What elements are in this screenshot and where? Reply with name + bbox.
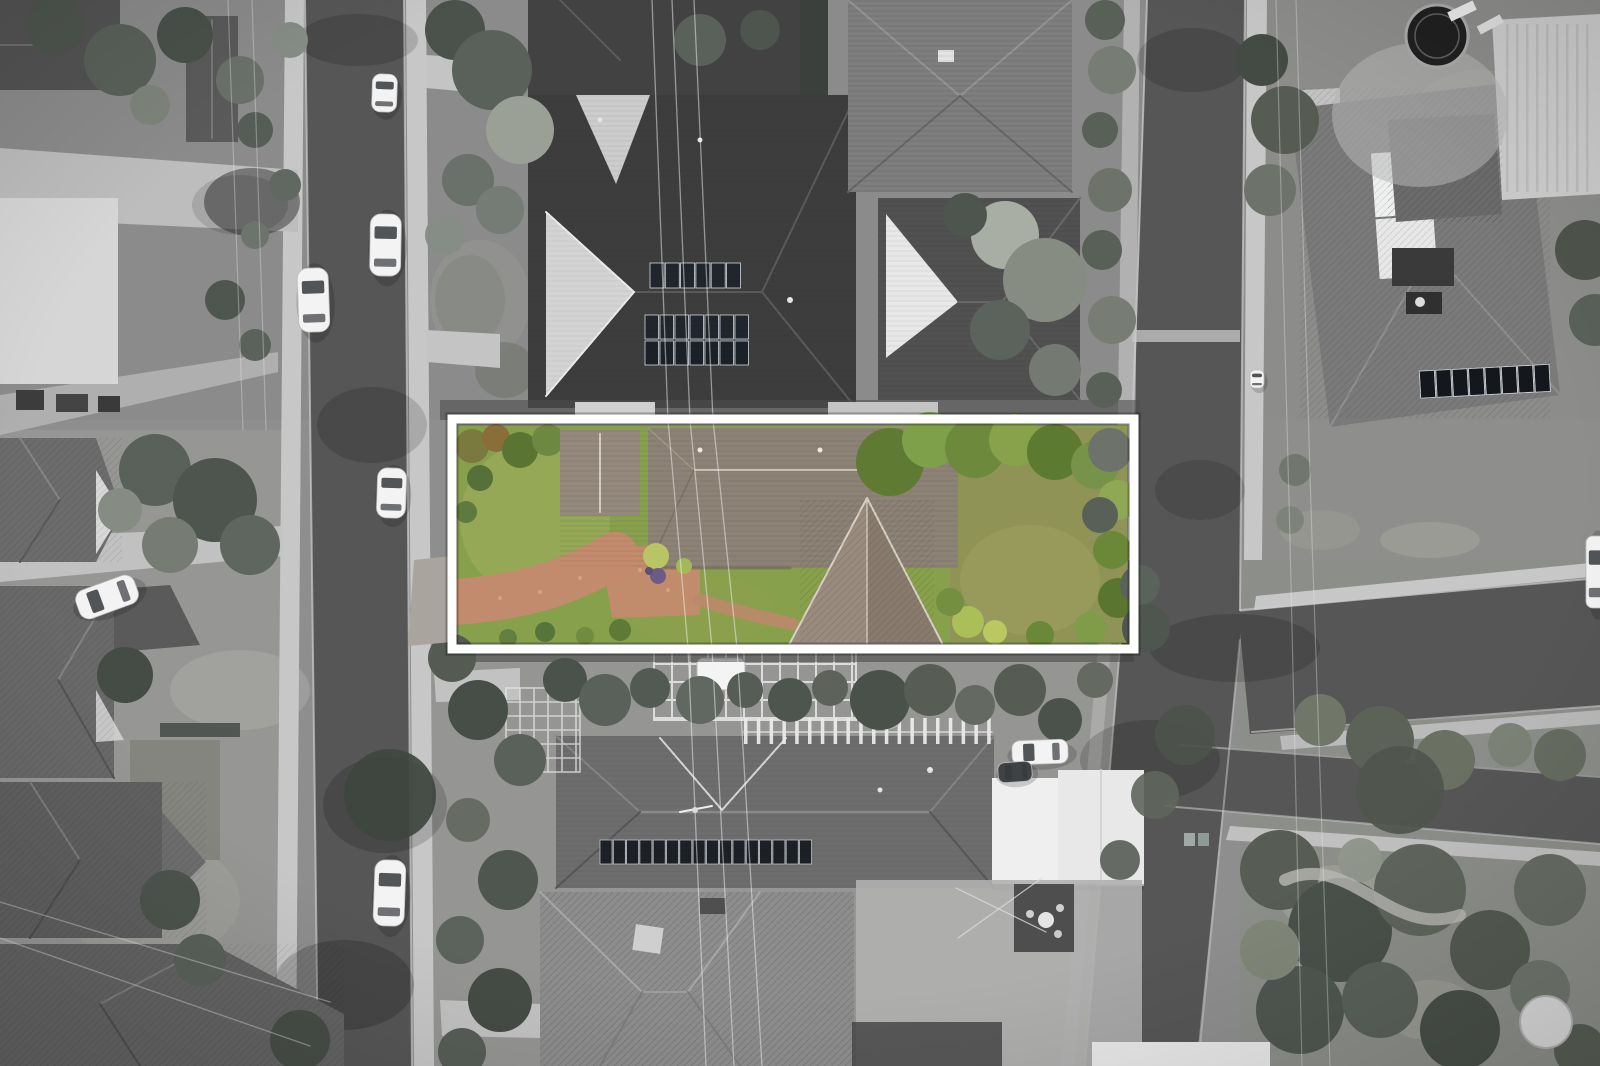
photo-layers — [0, 0, 1600, 1066]
vignette — [0, 0, 1600, 1066]
layer-vignette — [0, 0, 1600, 1066]
aerial-photo — [0, 0, 1600, 1066]
aerial-photo-canvas — [0, 0, 1600, 1066]
